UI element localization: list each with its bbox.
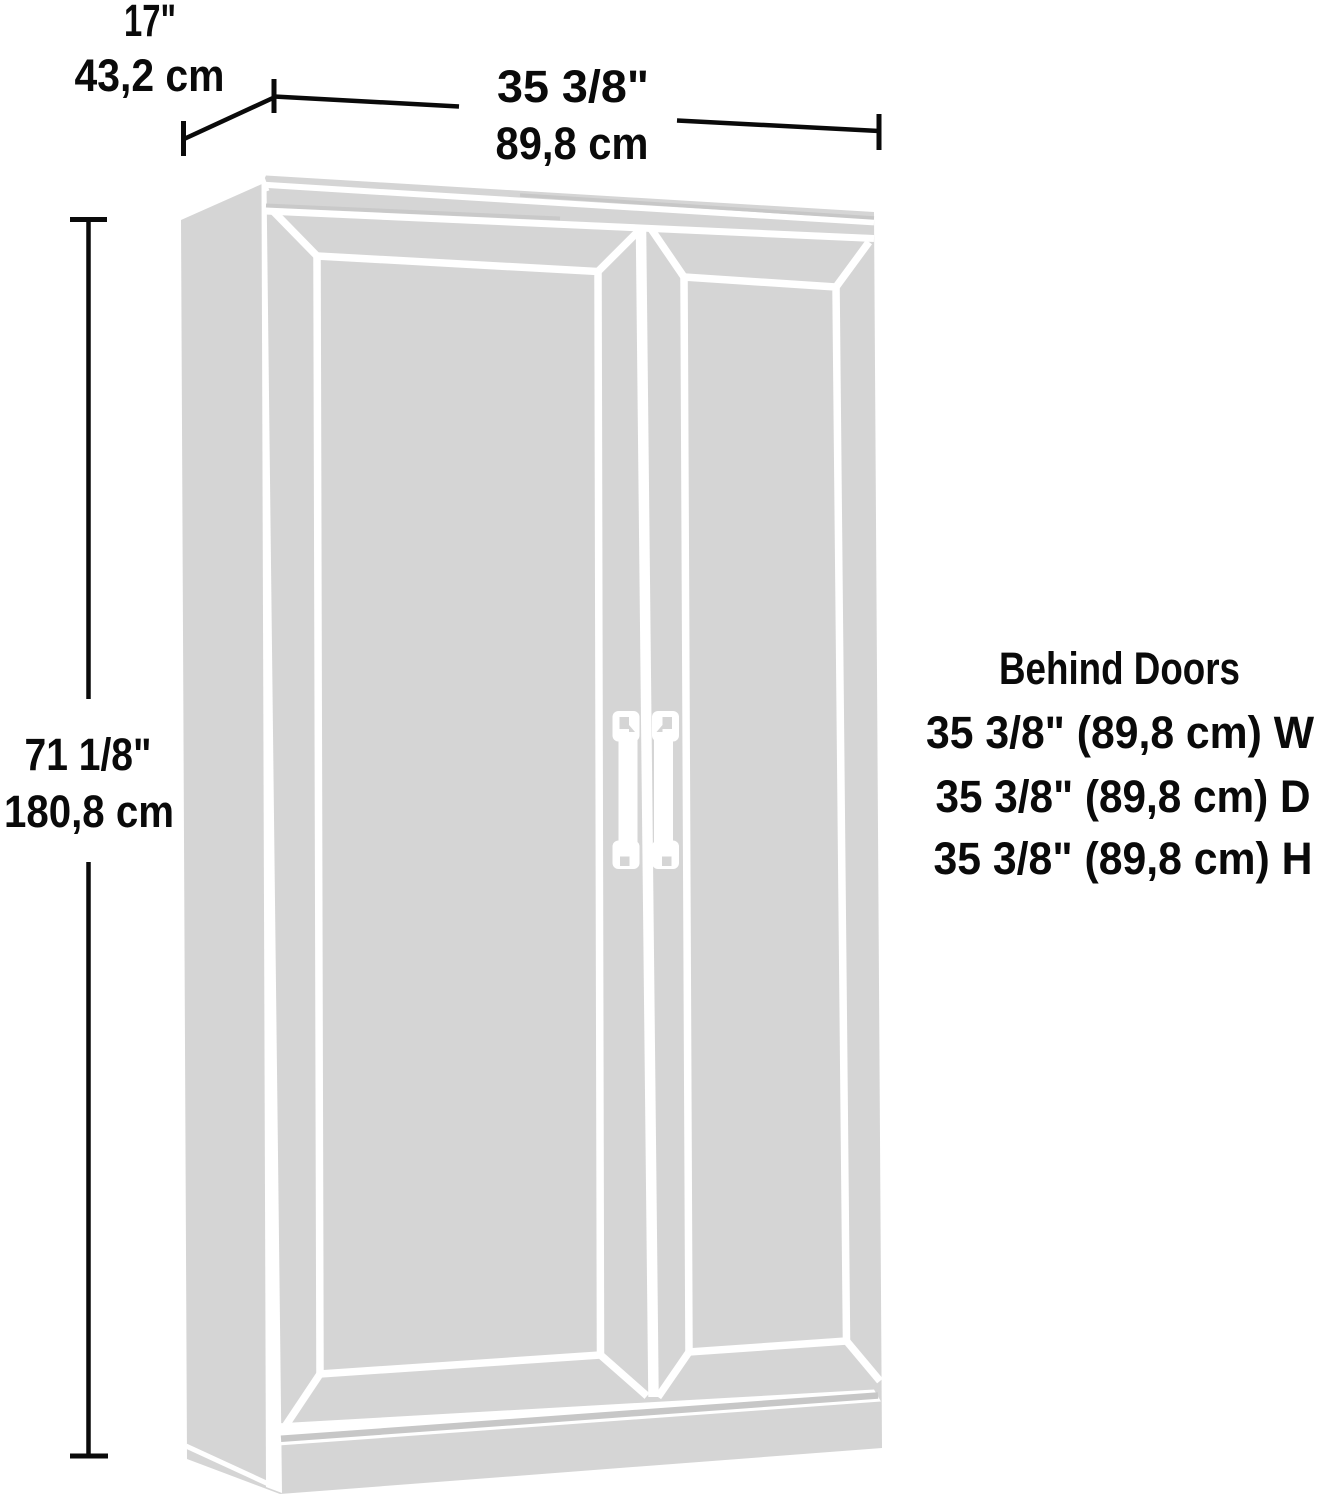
svg-text:35 3/8": 35 3/8" xyxy=(497,61,649,112)
svg-text:180,8 cm: 180,8 cm xyxy=(4,786,174,837)
svg-text:89,8 cm: 89,8 cm xyxy=(496,118,649,169)
svg-text:35 3/8" (89,8 cm) H: 35 3/8" (89,8 cm) H xyxy=(934,833,1313,884)
svg-text:43,2 cm: 43,2 cm xyxy=(75,50,225,101)
svg-text:35 3/8" (89,8 cm) W: 35 3/8" (89,8 cm) W xyxy=(926,707,1314,758)
svg-text:Behind Doors: Behind Doors xyxy=(999,643,1240,694)
svg-text:17": 17" xyxy=(124,0,176,46)
svg-text:71 1/8": 71 1/8" xyxy=(25,729,152,780)
svg-text:35 3/8" (89,8 cm) D: 35 3/8" (89,8 cm) D xyxy=(936,771,1311,822)
